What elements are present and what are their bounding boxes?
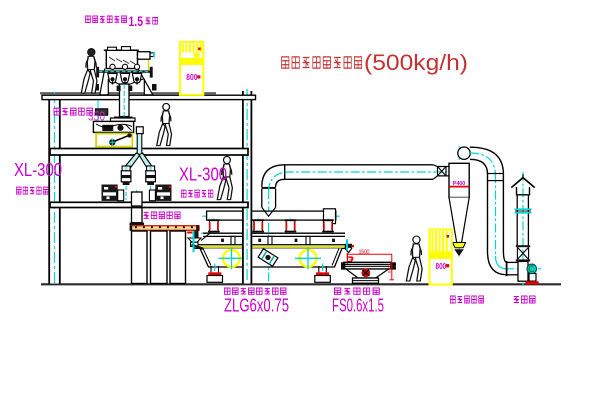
svg-text:800: 800 (436, 262, 447, 271)
svg-text:XL-300: XL-300 (179, 164, 227, 185)
svg-text:P400: P400 (453, 181, 466, 187)
svg-text:540: 540 (387, 264, 392, 273)
svg-text:800: 800 (186, 73, 198, 82)
svg-text:ZLG6x0.75: ZLG6x0.75 (224, 295, 289, 316)
svg-text:XL-300: XL-300 (14, 159, 62, 180)
svg-text:1500: 1500 (359, 250, 370, 256)
svg-text:(500kg/h): (500kg/h) (364, 50, 468, 75)
svg-text:350: 350 (88, 109, 105, 124)
svg-text:1.5: 1.5 (129, 14, 144, 29)
svg-text:FS0.6x1.5: FS0.6x1.5 (332, 295, 384, 316)
